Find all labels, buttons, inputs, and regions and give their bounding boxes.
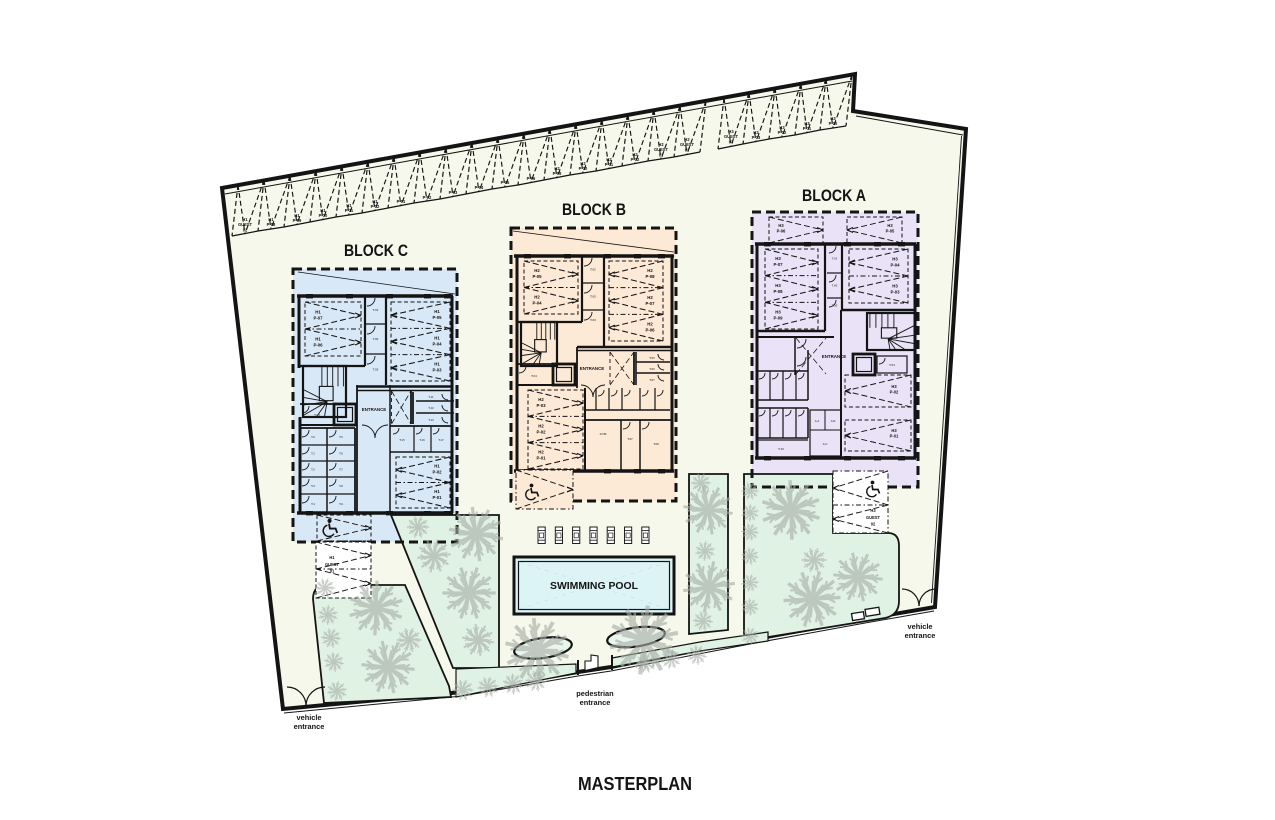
svg-text:T.02: T.02 <box>590 295 596 299</box>
svg-text:T.9: T.9 <box>339 502 343 506</box>
svg-text:BLOCK C: BLOCK C <box>344 242 408 260</box>
svg-text:T.15: T.15 <box>399 438 405 442</box>
svg-text:A.C: A.C <box>823 442 828 446</box>
svg-text:T.04: T.04 <box>531 374 537 378</box>
svg-text:T.12: T.12 <box>428 406 434 410</box>
svg-text:P-02: P-02 <box>423 195 432 200</box>
svg-text:P-06: P-06 <box>527 176 536 181</box>
svg-text:T.03: T.03 <box>590 318 596 322</box>
svg-text:T.02: T.02 <box>373 337 379 341</box>
svg-text:T.01: T.01 <box>832 257 838 261</box>
svg-text:T.0: T.0 <box>311 435 315 439</box>
svg-text:T.11: T.11 <box>428 395 434 399</box>
svg-text:T.03: T.03 <box>832 304 838 308</box>
svg-text:T.07: T.07 <box>649 378 655 382</box>
svg-text:T.13: T.13 <box>428 418 434 422</box>
svg-text:T.7: T.7 <box>339 468 343 472</box>
svg-text:T.3: T.3 <box>311 484 315 488</box>
svg-text:A.A: A.A <box>815 419 820 423</box>
svg-text:T.02: T.02 <box>832 284 838 288</box>
svg-text:T.17: T.17 <box>438 438 444 442</box>
svg-text:MASTERPLAN: MASTERPLAN <box>578 774 692 794</box>
svg-text:T.6: T.6 <box>339 452 343 456</box>
svg-text:SWIMMING POOL: SWIMMING POOL <box>550 581 638 592</box>
svg-text:GYM: GYM <box>600 432 607 436</box>
svg-text:T.4: T.4 <box>311 502 315 506</box>
svg-text:BLOCK B: BLOCK B <box>562 201 626 219</box>
svg-text:T.04: T.04 <box>314 413 320 417</box>
svg-text:A.B: A.B <box>831 419 836 423</box>
svg-text:T.07: T.07 <box>627 437 633 441</box>
svg-text:vehicleentrance: vehicleentrance <box>294 713 325 731</box>
svg-text:P-05: P-05 <box>501 180 510 185</box>
svg-text:T.04: T.04 <box>889 363 895 367</box>
svg-text:T.1: T.1 <box>311 452 315 456</box>
svg-text:vehicleentrance: vehicleentrance <box>905 622 936 640</box>
svg-text:T.05: T.05 <box>649 356 655 360</box>
svg-text:BLOCK A: BLOCK A <box>802 187 866 205</box>
svg-text:ENTRANCE: ENTRANCE <box>362 407 386 412</box>
svg-text:ENTRANCE: ENTRANCE <box>822 354 846 359</box>
svg-text:T.03: T.03 <box>373 368 379 372</box>
svg-text:pedestrianentrance: pedestrianentrance <box>576 689 614 707</box>
svg-text:P-04: P-04 <box>475 185 484 190</box>
svg-text:T.5: T.5 <box>339 435 343 439</box>
svg-text:T.10: T.10 <box>778 447 784 451</box>
svg-text:P-03: P-03 <box>449 190 458 195</box>
svg-text:ENTRANCE: ENTRANCE <box>580 366 604 371</box>
svg-text:T.01: T.01 <box>590 268 596 272</box>
svg-text:T.01: T.01 <box>373 308 379 312</box>
svg-text:T.06: T.06 <box>649 367 655 371</box>
svg-text:T.8: T.8 <box>339 484 343 488</box>
svg-text:T.2: T.2 <box>311 468 315 472</box>
svg-text:T.08: T.08 <box>653 442 659 446</box>
svg-text:T.16: T.16 <box>419 438 425 442</box>
svg-text:P-01: P-01 <box>397 199 406 204</box>
